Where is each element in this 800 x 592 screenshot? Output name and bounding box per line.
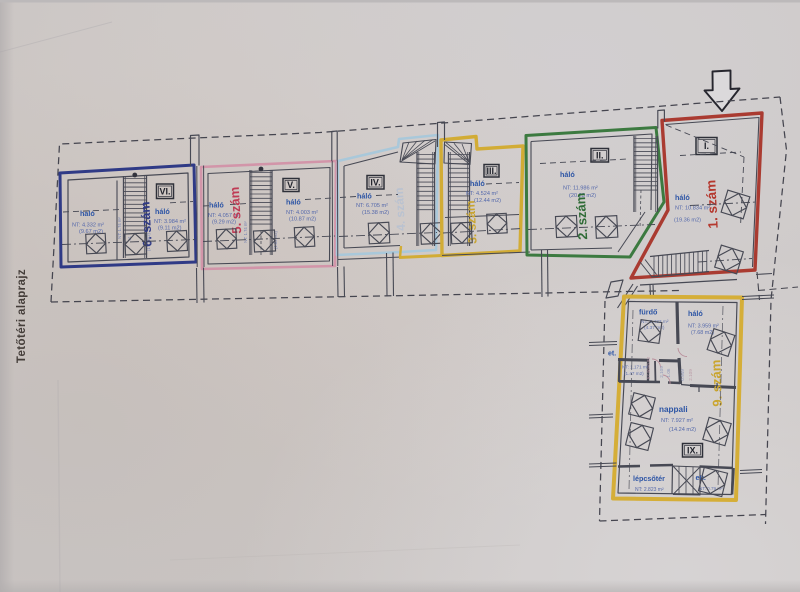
svg-text:Tetőtéri alaprajz: Tetőtéri alaprajz (16, 269, 28, 363)
svg-text:2.109: 2.109 (659, 366, 664, 378)
svg-text:háló: háló (560, 170, 575, 179)
svg-text:NT: 7.927 m²: NT: 7.927 m² (661, 418, 693, 424)
svg-text:III.: III. (486, 166, 496, 176)
svg-text:1.06: 1.06 (666, 368, 671, 377)
svg-text:(19.36 m2): (19.36 m2) (674, 218, 701, 224)
svg-text:VI.: VI. (159, 187, 170, 197)
svg-text:9. szám: 9. szám (708, 359, 725, 406)
svg-text:NT: 1.171 m²: NT: 1.171 m² (622, 365, 649, 370)
svg-text:fürdő: fürdő (639, 308, 658, 317)
svg-text:NT: 4.003 m²: NT: 4.003 m² (286, 210, 318, 216)
svg-text:NT: 3.984 m²: NT: 3.984 m² (154, 219, 186, 225)
svg-text:V.: V. (287, 180, 295, 190)
svg-text:NT: 2.823 m²: NT: 2.823 m² (635, 487, 664, 493)
svg-text:4. szám: 4. szám (392, 187, 408, 231)
svg-text:háló: háló (470, 179, 485, 188)
svg-text:háló: háló (675, 193, 690, 202)
svg-text:háló: háló (286, 198, 301, 207)
svg-text:(1.47 m2): (1.47 m2) (624, 371, 644, 376)
svg-text:2.109: 2.109 (688, 369, 693, 381)
svg-text:háló: háló (155, 207, 170, 216)
svg-text:NT: 11.986 m²: NT: 11.986 m² (563, 186, 598, 192)
svg-text:II.: II. (596, 151, 604, 161)
svg-text:0.949: 0.949 (680, 369, 685, 381)
svg-text:NT: 6.705 m²: NT: 6.705 m² (356, 203, 388, 209)
svg-text:(10.87 m2): (10.87 m2) (289, 217, 316, 223)
svg-text:IV.: IV. (370, 178, 380, 188)
svg-text:háló: háló (688, 309, 703, 318)
svg-text:NT: 1.74 m²: NT: 1.74 m² (117, 217, 122, 239)
svg-text:háló: háló (209, 201, 224, 210)
svg-text:et.: et. (608, 351, 616, 358)
svg-text:háló: háló (357, 192, 372, 201)
svg-text:6. szám: 6. szám (138, 201, 154, 247)
svg-text:(12.44 m2): (12.44 m2) (474, 198, 501, 204)
svg-text:NT: 4.332 m²: NT: 4.332 m² (72, 223, 104, 229)
svg-text:nappali: nappali (659, 405, 688, 414)
svg-text:lépcsőtér: lépcsőtér (633, 474, 665, 483)
svg-text:(14.24 m2): (14.24 m2) (669, 427, 696, 433)
svg-text:(7.68 m2): (7.68 m2) (691, 330, 714, 336)
svg-text:NT: 4.524 m²: NT: 4.524 m² (466, 191, 498, 197)
svg-text:5. szám: 5. szám (227, 186, 244, 234)
svg-text:57.90×0.82: 57.90×0.82 (646, 356, 651, 379)
svg-text:IX.: IX. (687, 446, 698, 456)
svg-text:2. szám: 2. szám (573, 192, 590, 240)
svg-text:(15.38 m2): (15.38 m2) (362, 210, 389, 216)
